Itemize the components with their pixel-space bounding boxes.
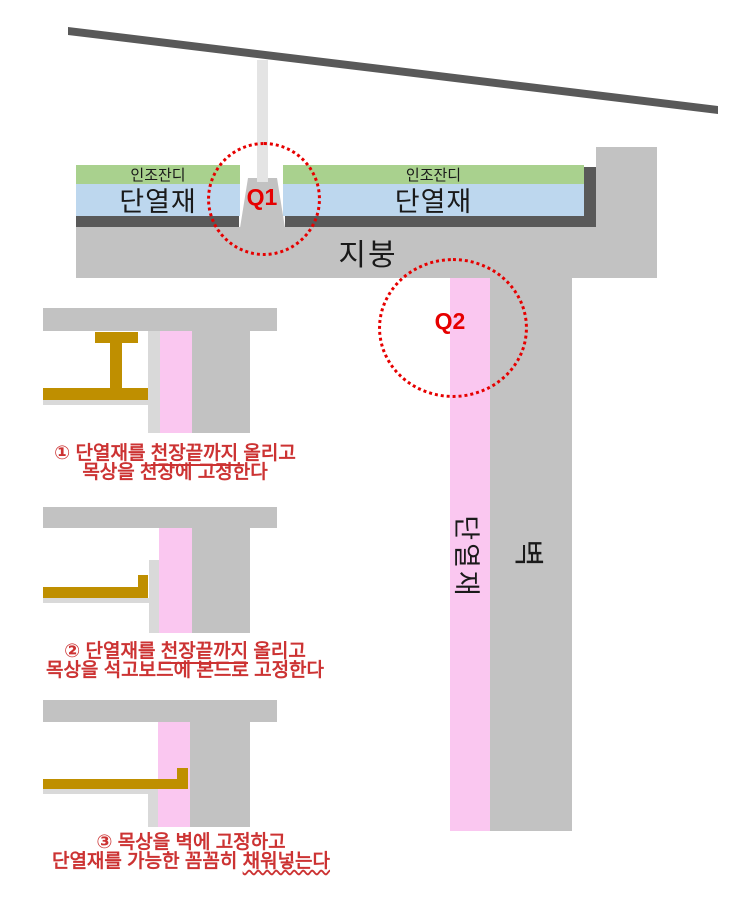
membrane-upturn bbox=[584, 167, 596, 227]
roof-insulation-label-right: 단열재 bbox=[283, 183, 584, 216]
detail2-ceiling-board bbox=[43, 598, 153, 603]
sloped-roof-line bbox=[68, 27, 718, 114]
detail2-furring-bar bbox=[43, 587, 148, 598]
detail3-ceiling-slab bbox=[43, 700, 277, 722]
detail3-ceiling-board bbox=[43, 789, 148, 794]
detail1-furring-top bbox=[95, 332, 138, 343]
wall-label: 벽 bbox=[516, 514, 546, 594]
roof-slab-label: 지붕 bbox=[308, 233, 428, 271]
detail1-furring-stem bbox=[110, 343, 122, 388]
detail3-wall bbox=[190, 722, 250, 827]
wall-insulation-label: 단열재 bbox=[457, 497, 481, 617]
detail1-wall bbox=[192, 331, 250, 433]
detail1-ceiling-slab bbox=[43, 308, 277, 331]
detail2-furring-step bbox=[138, 575, 148, 587]
detail2-ceiling-slab bbox=[43, 507, 277, 528]
detail3-plasterboard bbox=[148, 789, 158, 827]
detail2-wall bbox=[192, 528, 250, 633]
detail2-insulation bbox=[159, 528, 192, 633]
detail1-plasterboard bbox=[148, 331, 160, 433]
step2-caption-line1: ② 단열재를 천장끝까지 올리고 bbox=[35, 642, 335, 661]
diagram-canvas: 인조잔디 인조잔디 단열재 단열재 지붕 단열재 벽 Q1 Q2 ① 단열재를 … bbox=[0, 0, 750, 899]
step1-caption-line1: ① 단열재를 천장끝까지 올리고 bbox=[40, 444, 310, 463]
step3-caption-line2: 단열재를 가능한 꼼꼼히 채워넣는다 bbox=[26, 852, 356, 871]
step2-caption-line2: 목상을 석고보드에 본드로 고정한다 bbox=[35, 661, 335, 680]
q2-label: Q2 bbox=[420, 306, 480, 336]
detail1-furring-bottom bbox=[43, 388, 148, 400]
step2-caption: ② 단열재를 천장끝까지 올리고 목상을 석고보드에 본드로 고정한다 bbox=[35, 642, 335, 680]
q1-label: Q1 bbox=[232, 182, 292, 212]
detail1-ceiling-board bbox=[43, 400, 153, 405]
detail3-furring-bar bbox=[43, 779, 188, 789]
step1-caption: ① 단열재를 천장끝까지 올리고 목상을 천장에 고정한다 bbox=[40, 444, 310, 482]
step1-caption-line2: 목상을 천장에 고정한다 bbox=[40, 463, 310, 482]
step3-caption-line1: ③ 목상을 벽에 고정하고 bbox=[26, 833, 356, 852]
detail1-insulation bbox=[160, 331, 192, 433]
step3-caption: ③ 목상을 벽에 고정하고 단열재를 가능한 꼼꼼히 채워넣는다 bbox=[26, 833, 356, 871]
detail3-furring-hook bbox=[177, 768, 188, 779]
detail2-plasterboard bbox=[149, 560, 159, 633]
